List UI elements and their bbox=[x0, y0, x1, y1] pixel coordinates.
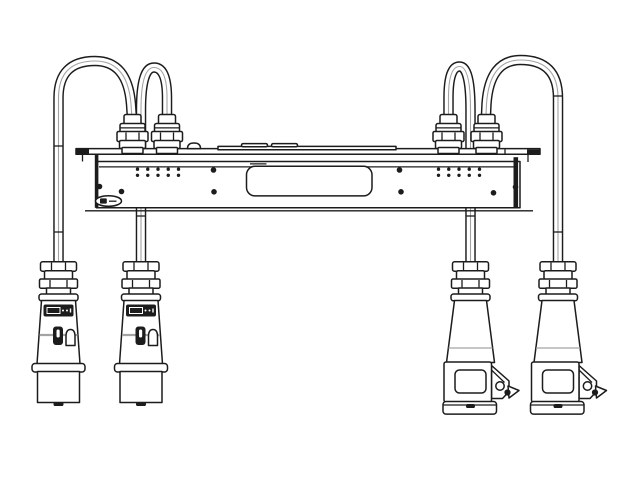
bottom-connectors bbox=[32, 262, 607, 414]
flange-right-end-cap bbox=[527, 149, 540, 154]
center-label-recess bbox=[247, 164, 373, 196]
dome-button bbox=[188, 143, 201, 149]
pdu-chassis bbox=[76, 143, 540, 211]
chassis-right-wall bbox=[514, 157, 519, 208]
cover-plate-tab-2 bbox=[272, 144, 298, 147]
cover-plate-tab-1 bbox=[242, 144, 268, 147]
cable-gland-top-3 bbox=[433, 115, 464, 154]
connector-plug-2 bbox=[115, 262, 168, 406]
connector-plug-1 bbox=[32, 262, 85, 406]
flange-left-end-cap bbox=[76, 149, 89, 155]
brand-badge bbox=[96, 196, 122, 207]
drawing-canvas: Technical line drawing: rack-mount power… bbox=[0, 0, 640, 480]
connector-socket-2 bbox=[531, 262, 607, 414]
cable-gland-top-2 bbox=[152, 115, 183, 154]
pdu-technical-drawing: Technical line drawing: rack-mount power… bbox=[0, 0, 640, 480]
connector-socket-1 bbox=[443, 262, 519, 414]
